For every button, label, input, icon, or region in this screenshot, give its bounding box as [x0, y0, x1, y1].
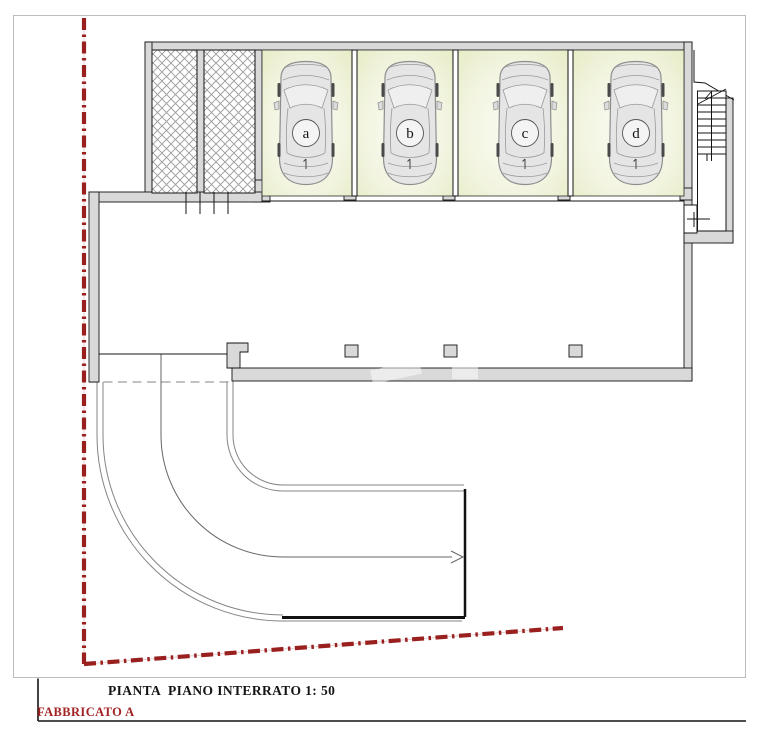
storage-room-1-hatch: [152, 50, 197, 193]
ramp-center-guide: [161, 354, 452, 557]
garage-label-c: c: [522, 126, 529, 142]
ramp-inner-wall-inner-line: [233, 381, 464, 485]
car-icon: [378, 62, 442, 185]
column: [345, 345, 358, 357]
ramp-outer-wall-inner-line: [103, 382, 283, 615]
l-column: [227, 343, 248, 368]
property-boundary-diagonal: [84, 628, 563, 664]
garage-label-a: a: [303, 126, 310, 142]
wall-stair-right: [726, 98, 733, 243]
watermark-patch: [452, 366, 478, 379]
wall-top: [145, 42, 692, 50]
column: [444, 345, 457, 357]
garage-label-d: d: [632, 126, 640, 142]
ramp-direction-arrow-icon: [451, 551, 463, 563]
car-icon: [493, 62, 557, 185]
floor-plan-page: a b c d PIANTA PIANO INTERRATO 1: 50 FAB…: [0, 0, 761, 733]
driveway-ramp: [89, 354, 465, 621]
ramp-inner-wall: [227, 381, 464, 491]
garage-divider: [352, 50, 357, 196]
column: [569, 345, 582, 357]
garage-label-b: b: [406, 126, 414, 142]
car-icon: [274, 62, 338, 185]
drawing-title: PIANTA PIANO INTERRATO 1: 50: [108, 683, 335, 698]
wall-storage-garage: [255, 50, 262, 182]
wall-between-storage-rooms: [197, 50, 204, 193]
title-block: PIANTA PIANO INTERRATO 1: 50 FABBRICATO …: [37, 679, 746, 722]
wall-right-upper: [684, 42, 692, 205]
floor-plan-canvas: a b c d PIANTA PIANO INTERRATO 1: 50 FAB…: [0, 0, 761, 733]
wall-left-outer: [145, 42, 152, 196]
storage-room-2-hatch: [204, 50, 255, 193]
ramp-outer-wall: [97, 382, 462, 621]
building-label: FABBRICATO A: [37, 705, 135, 719]
car-icon: [604, 62, 668, 185]
garage-divider: [568, 50, 573, 196]
garage-divider: [453, 50, 458, 196]
wall-right-lower: [684, 233, 692, 381]
wall-basement-left: [89, 192, 99, 382]
